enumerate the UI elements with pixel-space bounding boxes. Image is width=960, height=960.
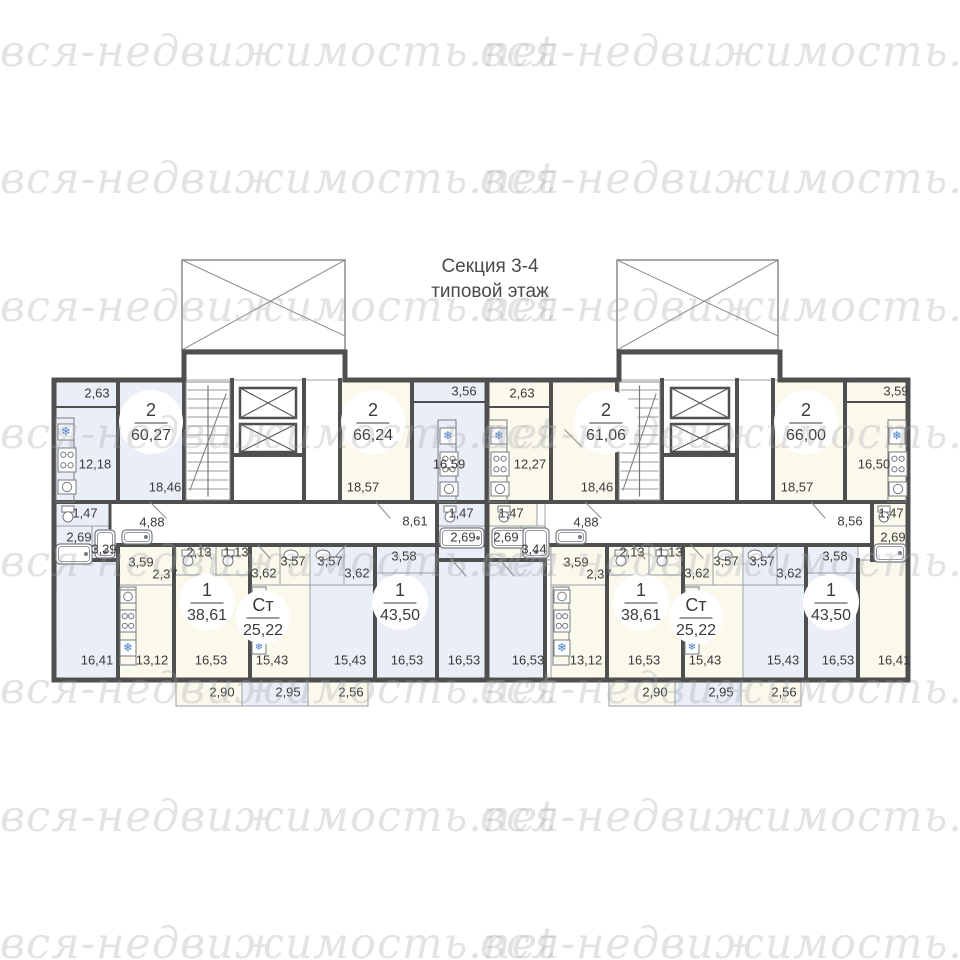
dimension-label: 16,53 (391, 653, 424, 668)
fridge-snowflake-icon: ❄ (494, 429, 504, 443)
apartment-area: 38,61 (621, 607, 661, 624)
dimension-label: 12,27 (514, 457, 547, 472)
dimension-label: 3,62 (251, 566, 276, 581)
apartment-area: 61,06 (586, 427, 626, 444)
dimension-label: 2,69 (450, 530, 475, 545)
apartment-rooms-count: 2 (801, 400, 811, 420)
dimension-label: 15,43 (689, 653, 722, 668)
apartment-area: 66,24 (353, 427, 393, 444)
dimension-label: 16,53 (822, 653, 855, 668)
fridge-snowflake-icon: ❄ (123, 641, 133, 655)
apartment-rooms-count: Ст (252, 595, 273, 615)
dimension-label: 1,47 (448, 506, 473, 521)
apartment-area: 60,27 (131, 427, 171, 444)
apartment-rooms-count: 1 (395, 580, 405, 600)
apartment-area: 25,22 (676, 622, 716, 639)
dimension-label: 4,88 (573, 515, 598, 530)
dimension-label: 2,69 (66, 530, 91, 545)
dimension-label: 3,44 (521, 542, 546, 557)
dimension-label: 4,88 (139, 515, 164, 530)
dimension-label: 3,58 (391, 549, 416, 564)
dimension-label: 2,90 (642, 685, 667, 700)
dimension-label: 16,53 (628, 653, 661, 668)
room (304, 380, 340, 502)
bathtub-drain (84, 552, 88, 556)
dimension-label: 3,59 (883, 384, 908, 399)
room (662, 455, 737, 502)
dimension-label: 3,57 (280, 554, 305, 569)
dimension-label: 1,47 (498, 506, 523, 521)
dimension-label: 16,59 (433, 457, 466, 472)
dimension-label: 2,56 (338, 685, 363, 700)
apartment-area: 43,50 (811, 607, 851, 624)
dimension-label: 3,57 (713, 554, 738, 569)
stove-icon (554, 610, 570, 632)
floorplan-page: ❄❄❄❄❄❄❄❄2,6312,1818,461,472,693,394,888,… (0, 0, 960, 960)
dimension-label: 2,13 (186, 545, 211, 560)
dimension-label: 3,57 (749, 554, 774, 569)
dimension-label: 2,95 (275, 685, 300, 700)
apartment-rooms-count: Ст (685, 595, 706, 615)
dimension-label: 3,39 (91, 542, 116, 557)
dimension-label: 16,53 (512, 653, 545, 668)
apartment-area: 43,50 (380, 607, 420, 624)
dimension-label: 18,46 (149, 480, 182, 495)
dimension-label: 2,90 (209, 685, 234, 700)
dimension-label: 12,18 (79, 457, 112, 472)
stove-icon (889, 452, 907, 476)
dimension-label: 16,53 (195, 653, 228, 668)
bathtub-drain (144, 535, 148, 539)
dimension-label: 1,13 (657, 545, 682, 560)
apartment-area: 25,22 (243, 622, 283, 639)
stove-icon (120, 610, 136, 632)
dimension-label: 13,12 (570, 653, 603, 668)
fridge-snowflake-icon: ❄ (61, 425, 71, 439)
floorplan-drawing: ❄❄❄❄❄❄❄❄2,6312,1818,461,472,693,394,888,… (0, 0, 960, 960)
apartment-rooms-count: 1 (202, 580, 212, 600)
dimension-label: 3,58 (822, 549, 847, 564)
fridge-snowflake-icon: ❄ (557, 641, 567, 655)
dimension-label: 8,56 (837, 514, 862, 529)
dimension-label: 2,37 (586, 567, 611, 582)
dimension-label: 3,59 (128, 555, 153, 570)
fridge-snowflake-icon: ❄ (443, 429, 453, 443)
apartment-area: 38,61 (187, 607, 227, 624)
dimension-label: 2,95 (708, 685, 733, 700)
dimension-label: 18,46 (581, 480, 614, 495)
bathtub-drain (898, 551, 902, 555)
dimension-label: 2,37 (152, 567, 177, 582)
bathtub-drain (578, 535, 582, 539)
room (232, 455, 304, 502)
dimension-label: 2,13 (619, 545, 644, 560)
room (737, 380, 773, 502)
dimension-label: 2,69 (493, 530, 518, 545)
plan-title-line1: Секция 3-4 (370, 254, 610, 279)
dimension-label: 2,63 (509, 386, 534, 401)
dimension-label: 1,47 (72, 506, 97, 521)
dimension-label: 15,43 (767, 653, 800, 668)
dimension-label: 3,62 (344, 566, 369, 581)
dimension-label: 16,41 (878, 653, 911, 668)
dimension-label: 16,53 (448, 653, 481, 668)
dimension-label: 3,62 (776, 566, 801, 581)
fridge-snowflake-icon: ❄ (892, 429, 902, 443)
dimension-label: 16,50 (858, 457, 891, 472)
apartment-rooms-count: 2 (601, 400, 611, 420)
dimension-label: 1,47 (878, 506, 903, 521)
dimension-label: 2,63 (84, 386, 109, 401)
dimension-label: 3,62 (684, 566, 709, 581)
apartment-rooms-count: 2 (368, 400, 378, 420)
dimension-label: 2,56 (771, 685, 796, 700)
apartment-rooms-count: 2 (146, 400, 156, 420)
dimension-label: 3,57 (317, 554, 342, 569)
dimension-label: 8,61 (402, 514, 427, 529)
dimension-label: 3,59 (563, 555, 588, 570)
dimension-label: 15,43 (334, 653, 367, 668)
dimension-label: 3,56 (451, 384, 476, 399)
apartment-rooms-count: 1 (826, 580, 836, 600)
stove-icon (58, 448, 76, 472)
dimension-label: 2,69 (880, 530, 905, 545)
dimension-label: 16,41 (81, 653, 114, 668)
dimension-label: 13,12 (136, 653, 169, 668)
plan-title: Секция 3-4 типовой этаж (370, 254, 610, 304)
dimension-label: 18,57 (781, 480, 814, 495)
bathtub-drain (476, 536, 480, 540)
stove-icon (491, 452, 509, 476)
plan-title-line2: типовой этаж (370, 279, 610, 304)
dimension-label: 1,13 (223, 545, 248, 560)
dimension-label: 15,43 (256, 653, 289, 668)
apartment-area: 66,00 (786, 427, 826, 444)
dimension-label: 18,57 (347, 480, 380, 495)
apartment-rooms-count: 1 (636, 580, 646, 600)
